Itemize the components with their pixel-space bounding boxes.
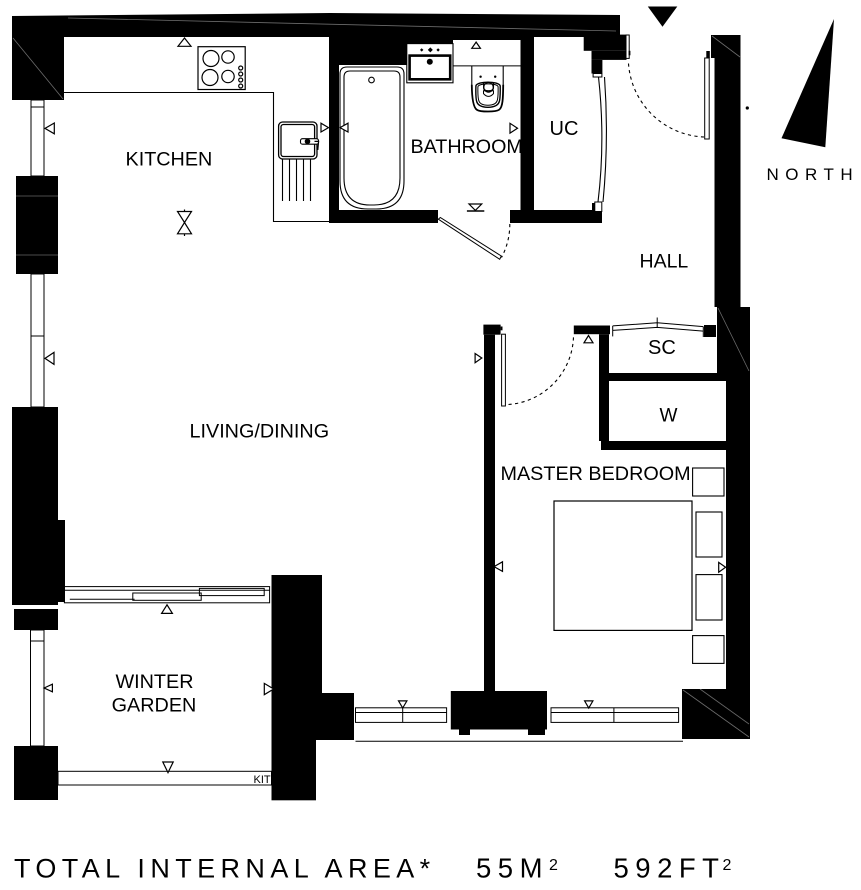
svg-text:GARDEN: GARDEN	[112, 694, 197, 716]
svg-text:2: 2	[549, 857, 558, 874]
svg-text:2: 2	[723, 857, 732, 874]
svg-text:UC: UC	[550, 118, 579, 140]
svg-text:NORTH: NORTH	[767, 165, 860, 184]
svg-text:KITCHEN: KITCHEN	[126, 149, 213, 171]
svg-text:55M: 55M	[476, 853, 549, 884]
svg-text:LIVING/DINING: LIVING/DINING	[190, 421, 330, 443]
svg-text:W: W	[660, 406, 678, 427]
svg-text:592FT: 592FT	[614, 853, 726, 884]
svg-text:SC: SC	[648, 337, 676, 359]
svg-text:MASTER BEDROOM: MASTER BEDROOM	[501, 463, 691, 485]
svg-text:BATHROOM: BATHROOM	[411, 136, 523, 158]
svg-text:TOTAL INTERNAL AREA*: TOTAL INTERNAL AREA*	[14, 854, 436, 884]
svg-text:WINTER: WINTER	[115, 671, 193, 693]
svg-text:HALL: HALL	[640, 251, 689, 273]
